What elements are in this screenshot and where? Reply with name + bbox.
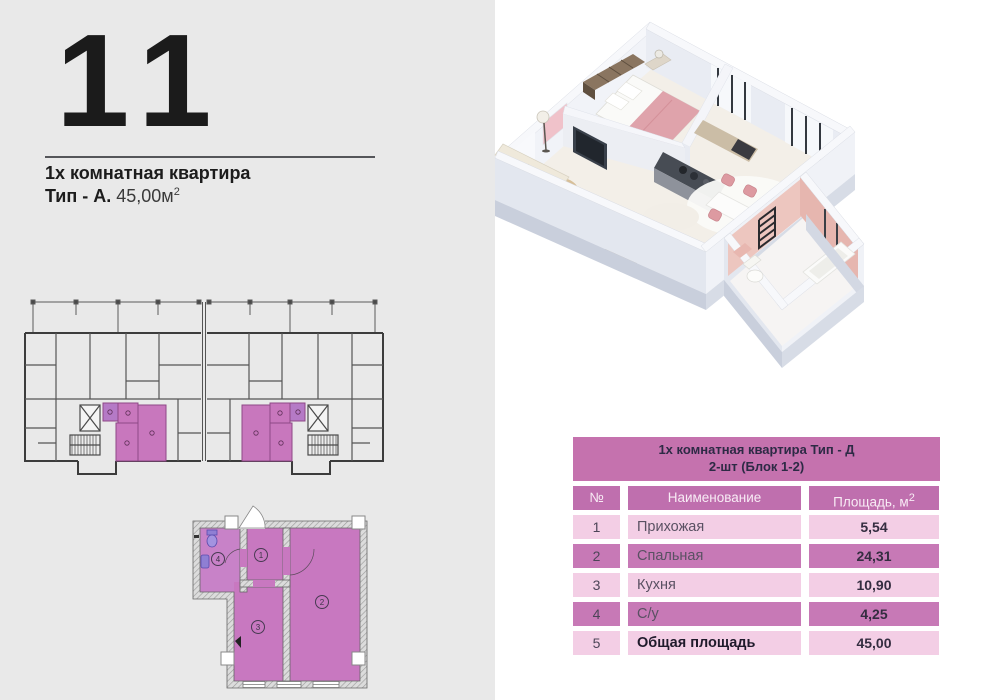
type-label: Тип - А. [45, 186, 111, 206]
room-number-room: 2 [320, 598, 325, 607]
page-number: 11 [56, 12, 228, 151]
room-number-hall: 1 [259, 551, 264, 560]
apartment-type-line: Тип - А. 45,00м2 [45, 186, 180, 207]
sink-icon [201, 555, 209, 568]
area-sup: 2 [174, 186, 180, 198]
building-floor-plan [18, 293, 398, 483]
table-title-line2: 2-шт (Блок 1-2) [575, 459, 938, 476]
table-row: 4 С/у 4,25 [573, 602, 940, 626]
toilet-icon [207, 530, 217, 535]
expansion-joint [203, 302, 206, 461]
room-number-bath: 4 [216, 555, 221, 564]
table-body: 1 Прихожая 5,54 2 Спальная 24,31 3 Кухня… [573, 515, 940, 655]
table-row-total: 5 Общая площадь 45,00 [573, 631, 940, 655]
area-table: 1х комнатная квартира Тип - Д 2-шт (Блок… [573, 437, 940, 655]
table-title-line1: 1х комнатная квартира Тип - Д [575, 442, 938, 459]
unit-floor-plan: 1 2 3 4 [185, 497, 375, 697]
windows [243, 682, 339, 688]
apartment-title: 1х комнатная квартира [45, 163, 250, 184]
page: 11 1х комнатная квартира Тип - А. 45,00м… [0, 0, 990, 700]
table-row: 3 Кухня 10,90 [573, 573, 940, 597]
entrance-door [237, 506, 265, 529]
column-header-num: № [573, 486, 620, 510]
column-header-name: Наименование [628, 486, 801, 510]
room-number-kitchen: 3 [256, 623, 261, 632]
vent-icon [194, 535, 199, 538]
table-title: 1х комнатная квартира Тип - Д 2-шт (Блок… [573, 437, 940, 481]
apartment-3d-render [473, 2, 897, 438]
table-header-row: № Наименование Площадь, м2 [573, 486, 940, 510]
column-header-area: Площадь, м2 [809, 486, 939, 510]
area-unit-sup: 2 [909, 492, 915, 504]
table-row: 2 Спальная 24,31 [573, 544, 940, 568]
area-value: 45,00м [116, 186, 173, 206]
table-row: 1 Прихожая 5,54 [573, 515, 940, 539]
title-divider [45, 156, 375, 158]
